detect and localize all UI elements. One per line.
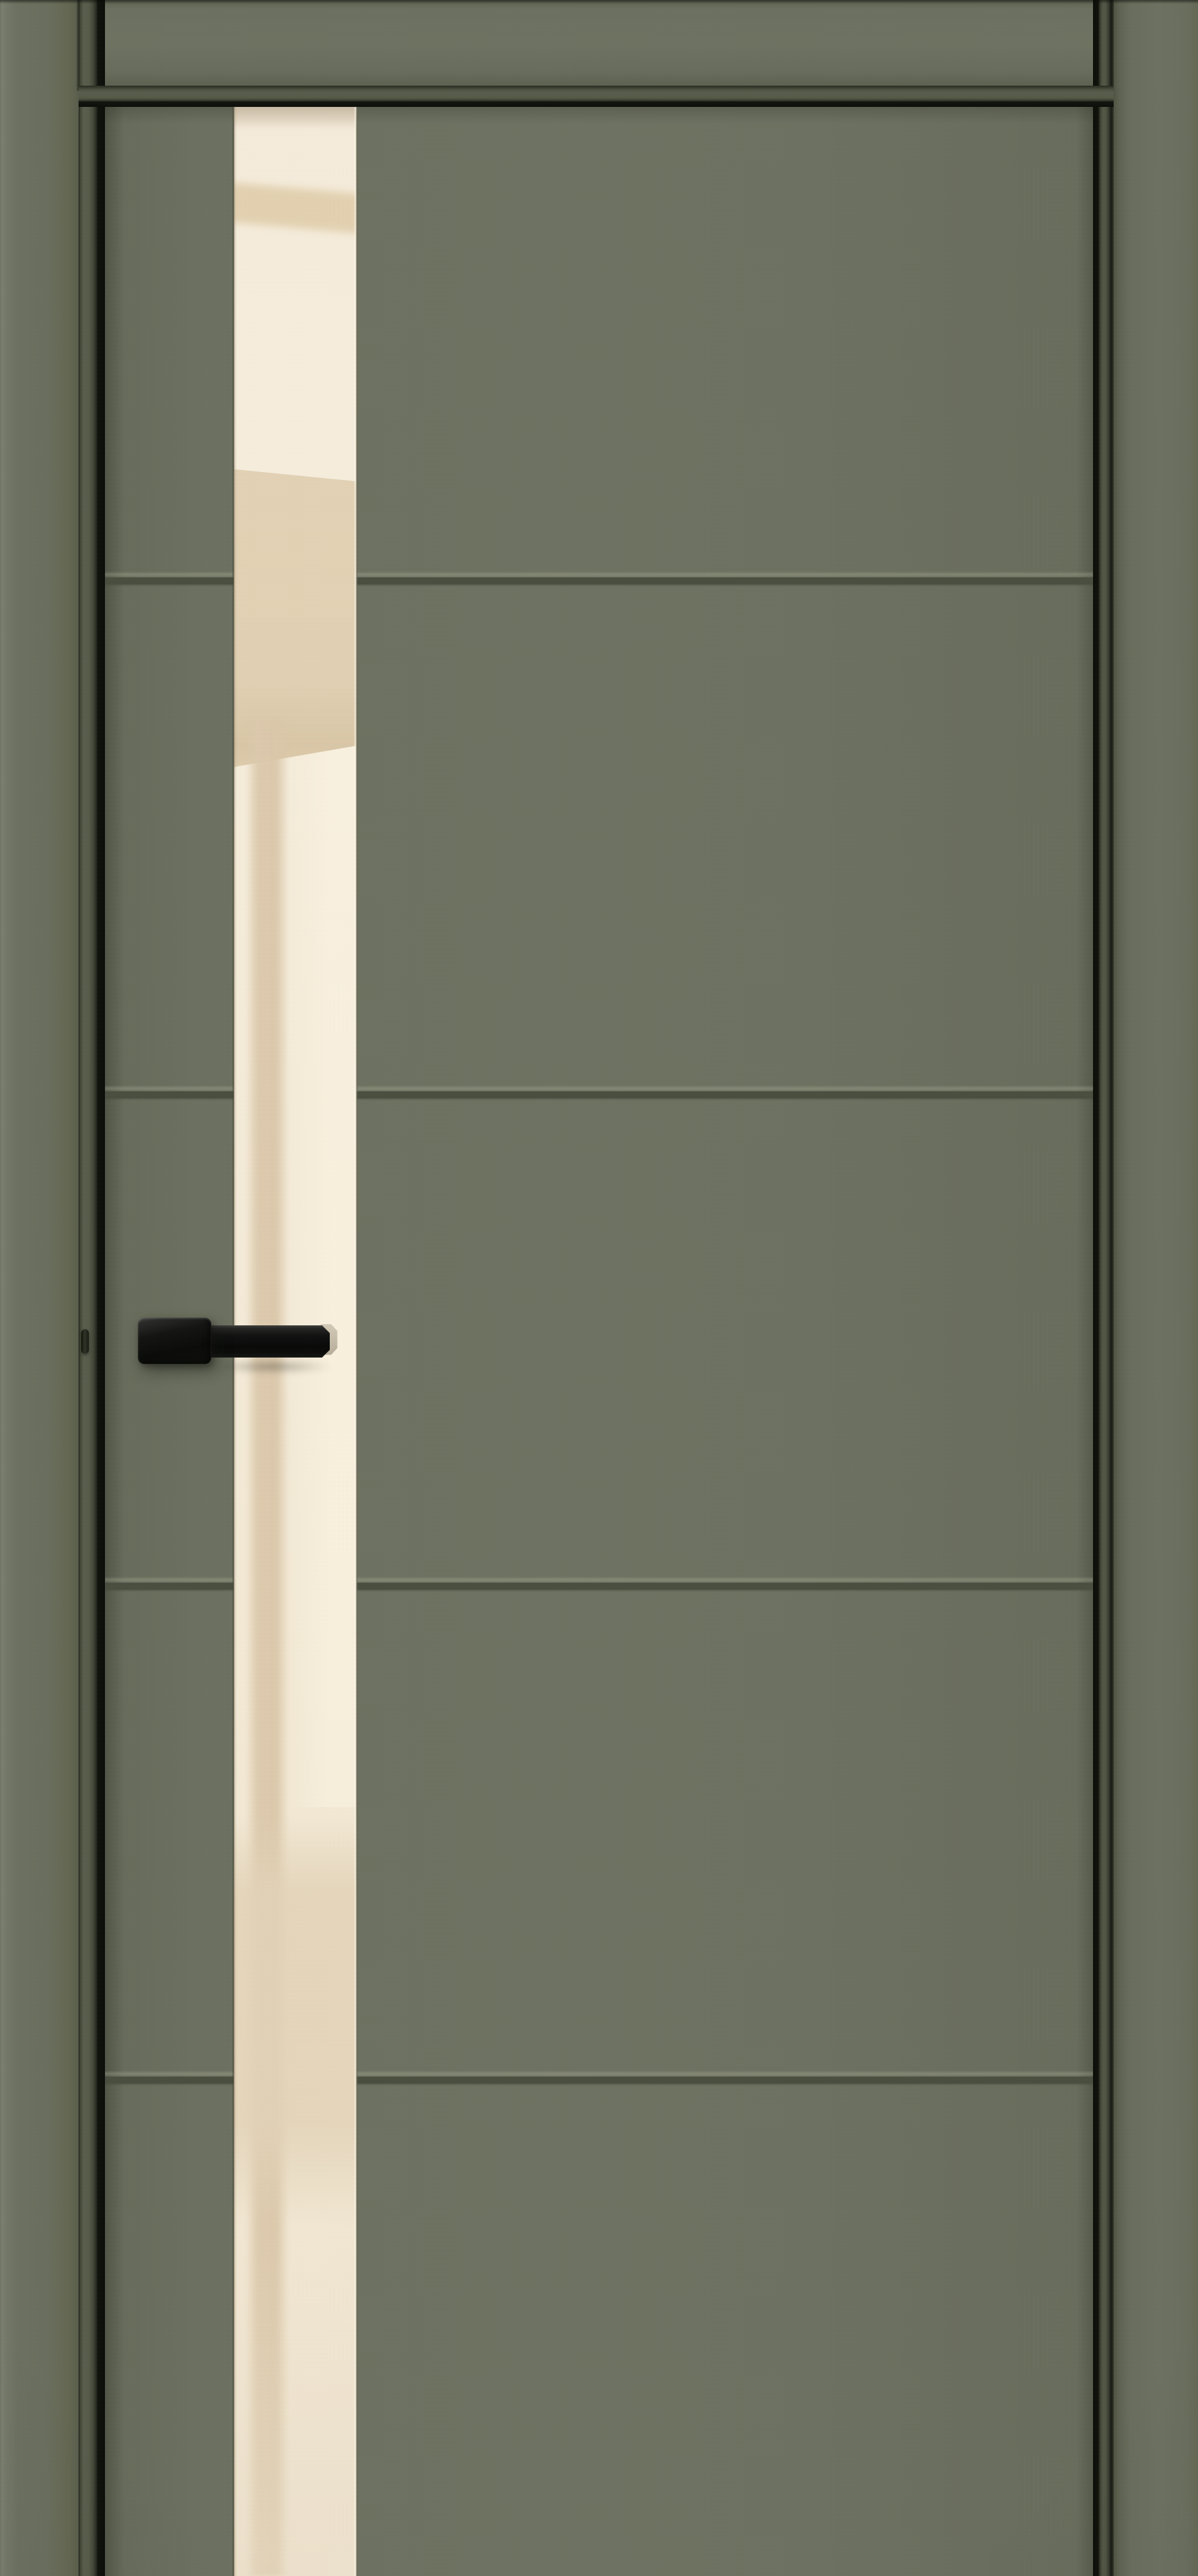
door-handle-rosette (138, 1318, 211, 1364)
glass-bright-right (290, 738, 356, 1807)
door-jamb-top (79, 86, 1114, 107)
door-handle-lever (193, 1325, 330, 1358)
top-edge-shade (0, 0, 1198, 4)
door-jamb-right (1093, 0, 1114, 2576)
glass-band-upper (234, 182, 356, 234)
door-product-render (0, 0, 1198, 2576)
hinge-pin (81, 1329, 89, 1354)
glass-bottom-soft (234, 2215, 356, 2576)
door-jamb-left (79, 0, 105, 2576)
glass-seam-right (356, 107, 357, 2576)
door-casing-left (0, 0, 79, 2576)
door-casing-right (1114, 0, 1198, 2576)
glass-top-contact-shadow (234, 107, 356, 129)
handle-cast-shadow (200, 1359, 361, 1378)
glass-lower-band (234, 1815, 356, 2227)
door-casing-header (79, 0, 1114, 86)
